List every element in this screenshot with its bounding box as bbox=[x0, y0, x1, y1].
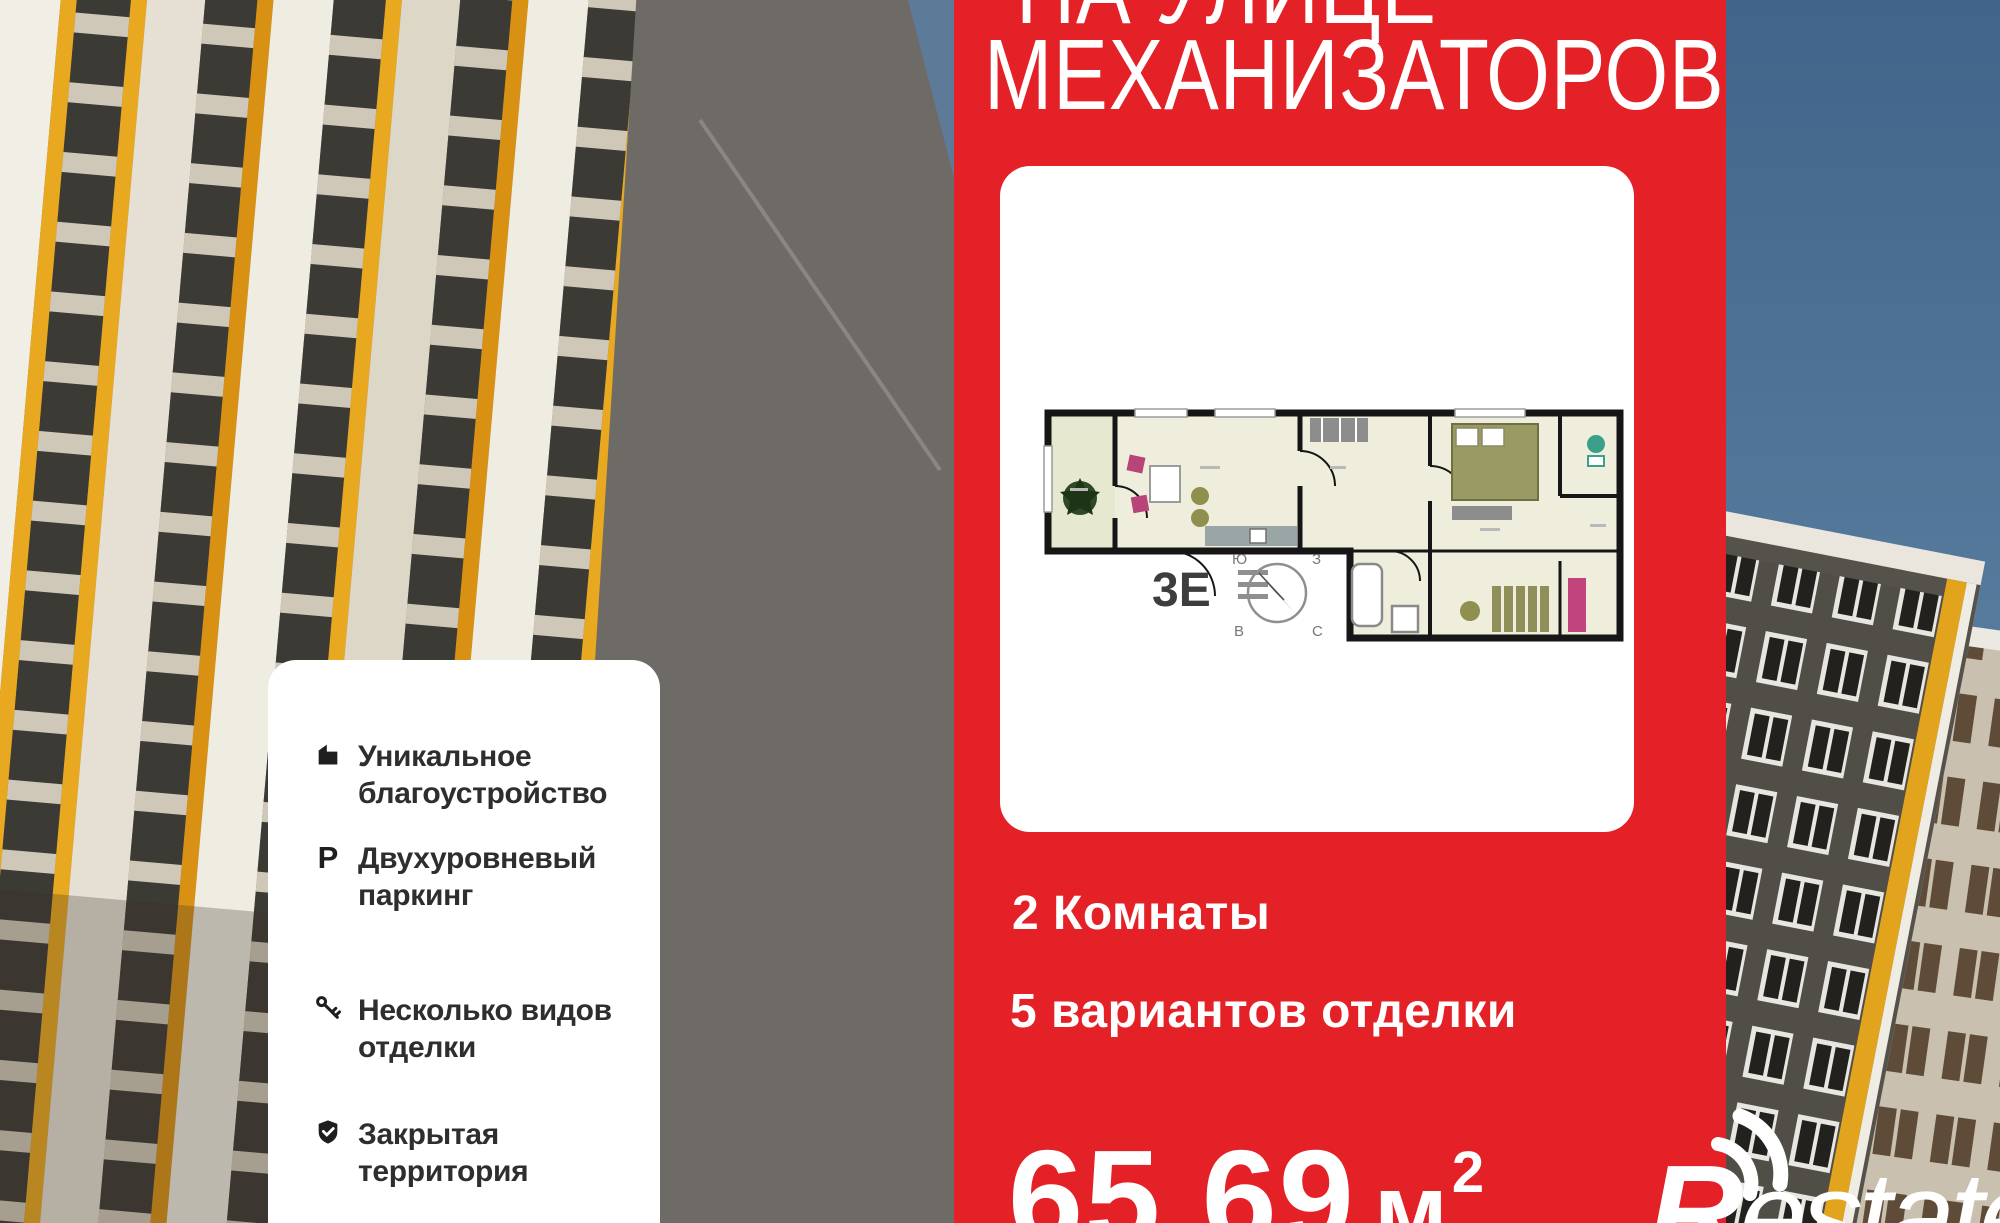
svg-text:З: З bbox=[1312, 551, 1321, 568]
feature-finishes: Несколько видов отделки bbox=[314, 992, 620, 1066]
feature-label: Закрытая территория bbox=[358, 1116, 620, 1190]
feature-closed-area: Закрытая территория bbox=[314, 1116, 620, 1190]
area-exponent: 2 bbox=[1452, 1140, 1484, 1205]
features-card: Уникальное благоустройство Р Двухуровнев… bbox=[268, 660, 660, 1223]
feature-landscaping: Уникальное благоустройство bbox=[314, 738, 620, 812]
complex-name-line2: МЕХАНИЗАТОРОВ bbox=[984, 25, 1725, 125]
floorplan-card: 3Е Ю З В С bbox=[1000, 166, 1634, 832]
parking-icon: Р bbox=[314, 842, 342, 873]
plan-area-microtext bbox=[1238, 570, 1268, 599]
landscaping-icon bbox=[314, 740, 342, 768]
floorplan-drawing: 3Е Ю З В С bbox=[1000, 166, 1634, 832]
key-icon bbox=[314, 994, 342, 1022]
svg-text:Ю: Ю bbox=[1232, 551, 1247, 568]
info-panel: НА УЛИЦЕ МЕХАНИЗАТОРОВ bbox=[954, 0, 1726, 1223]
svg-text:С: С bbox=[1312, 623, 1323, 640]
rooms-count: 2 Комнаты bbox=[1012, 888, 1270, 941]
logo-letter-r: R bbox=[1648, 1138, 1739, 1223]
listing-banner: НА УЛИЦЕ МЕХАНИЗАТОРОВ bbox=[0, 0, 2000, 1223]
building-photo-right bbox=[1726, 0, 2000, 1223]
feature-label: Несколько видов отделки bbox=[358, 992, 620, 1066]
feature-label: Двухуровневый паркинг bbox=[358, 840, 620, 914]
area-value: 65,69м2 bbox=[1008, 1120, 1480, 1223]
plan-code: 3Е bbox=[1152, 564, 1211, 617]
restate-logo[interactable]: Restate bbox=[1648, 1108, 2000, 1223]
area-unit: м bbox=[1374, 1154, 1448, 1223]
building-photo-right-art bbox=[1726, 0, 2000, 1223]
feature-label: Уникальное благоустройство bbox=[358, 738, 620, 812]
svg-text:В: В bbox=[1234, 623, 1244, 640]
logo-text: estate bbox=[1739, 1147, 2000, 1223]
finish-options: 5 вариантов отделки bbox=[1010, 986, 1517, 1039]
area-number: 65,69 bbox=[1008, 1122, 1356, 1223]
shield-check-icon bbox=[314, 1118, 342, 1146]
feature-parking: Р Двухуровневый паркинг bbox=[314, 840, 620, 914]
